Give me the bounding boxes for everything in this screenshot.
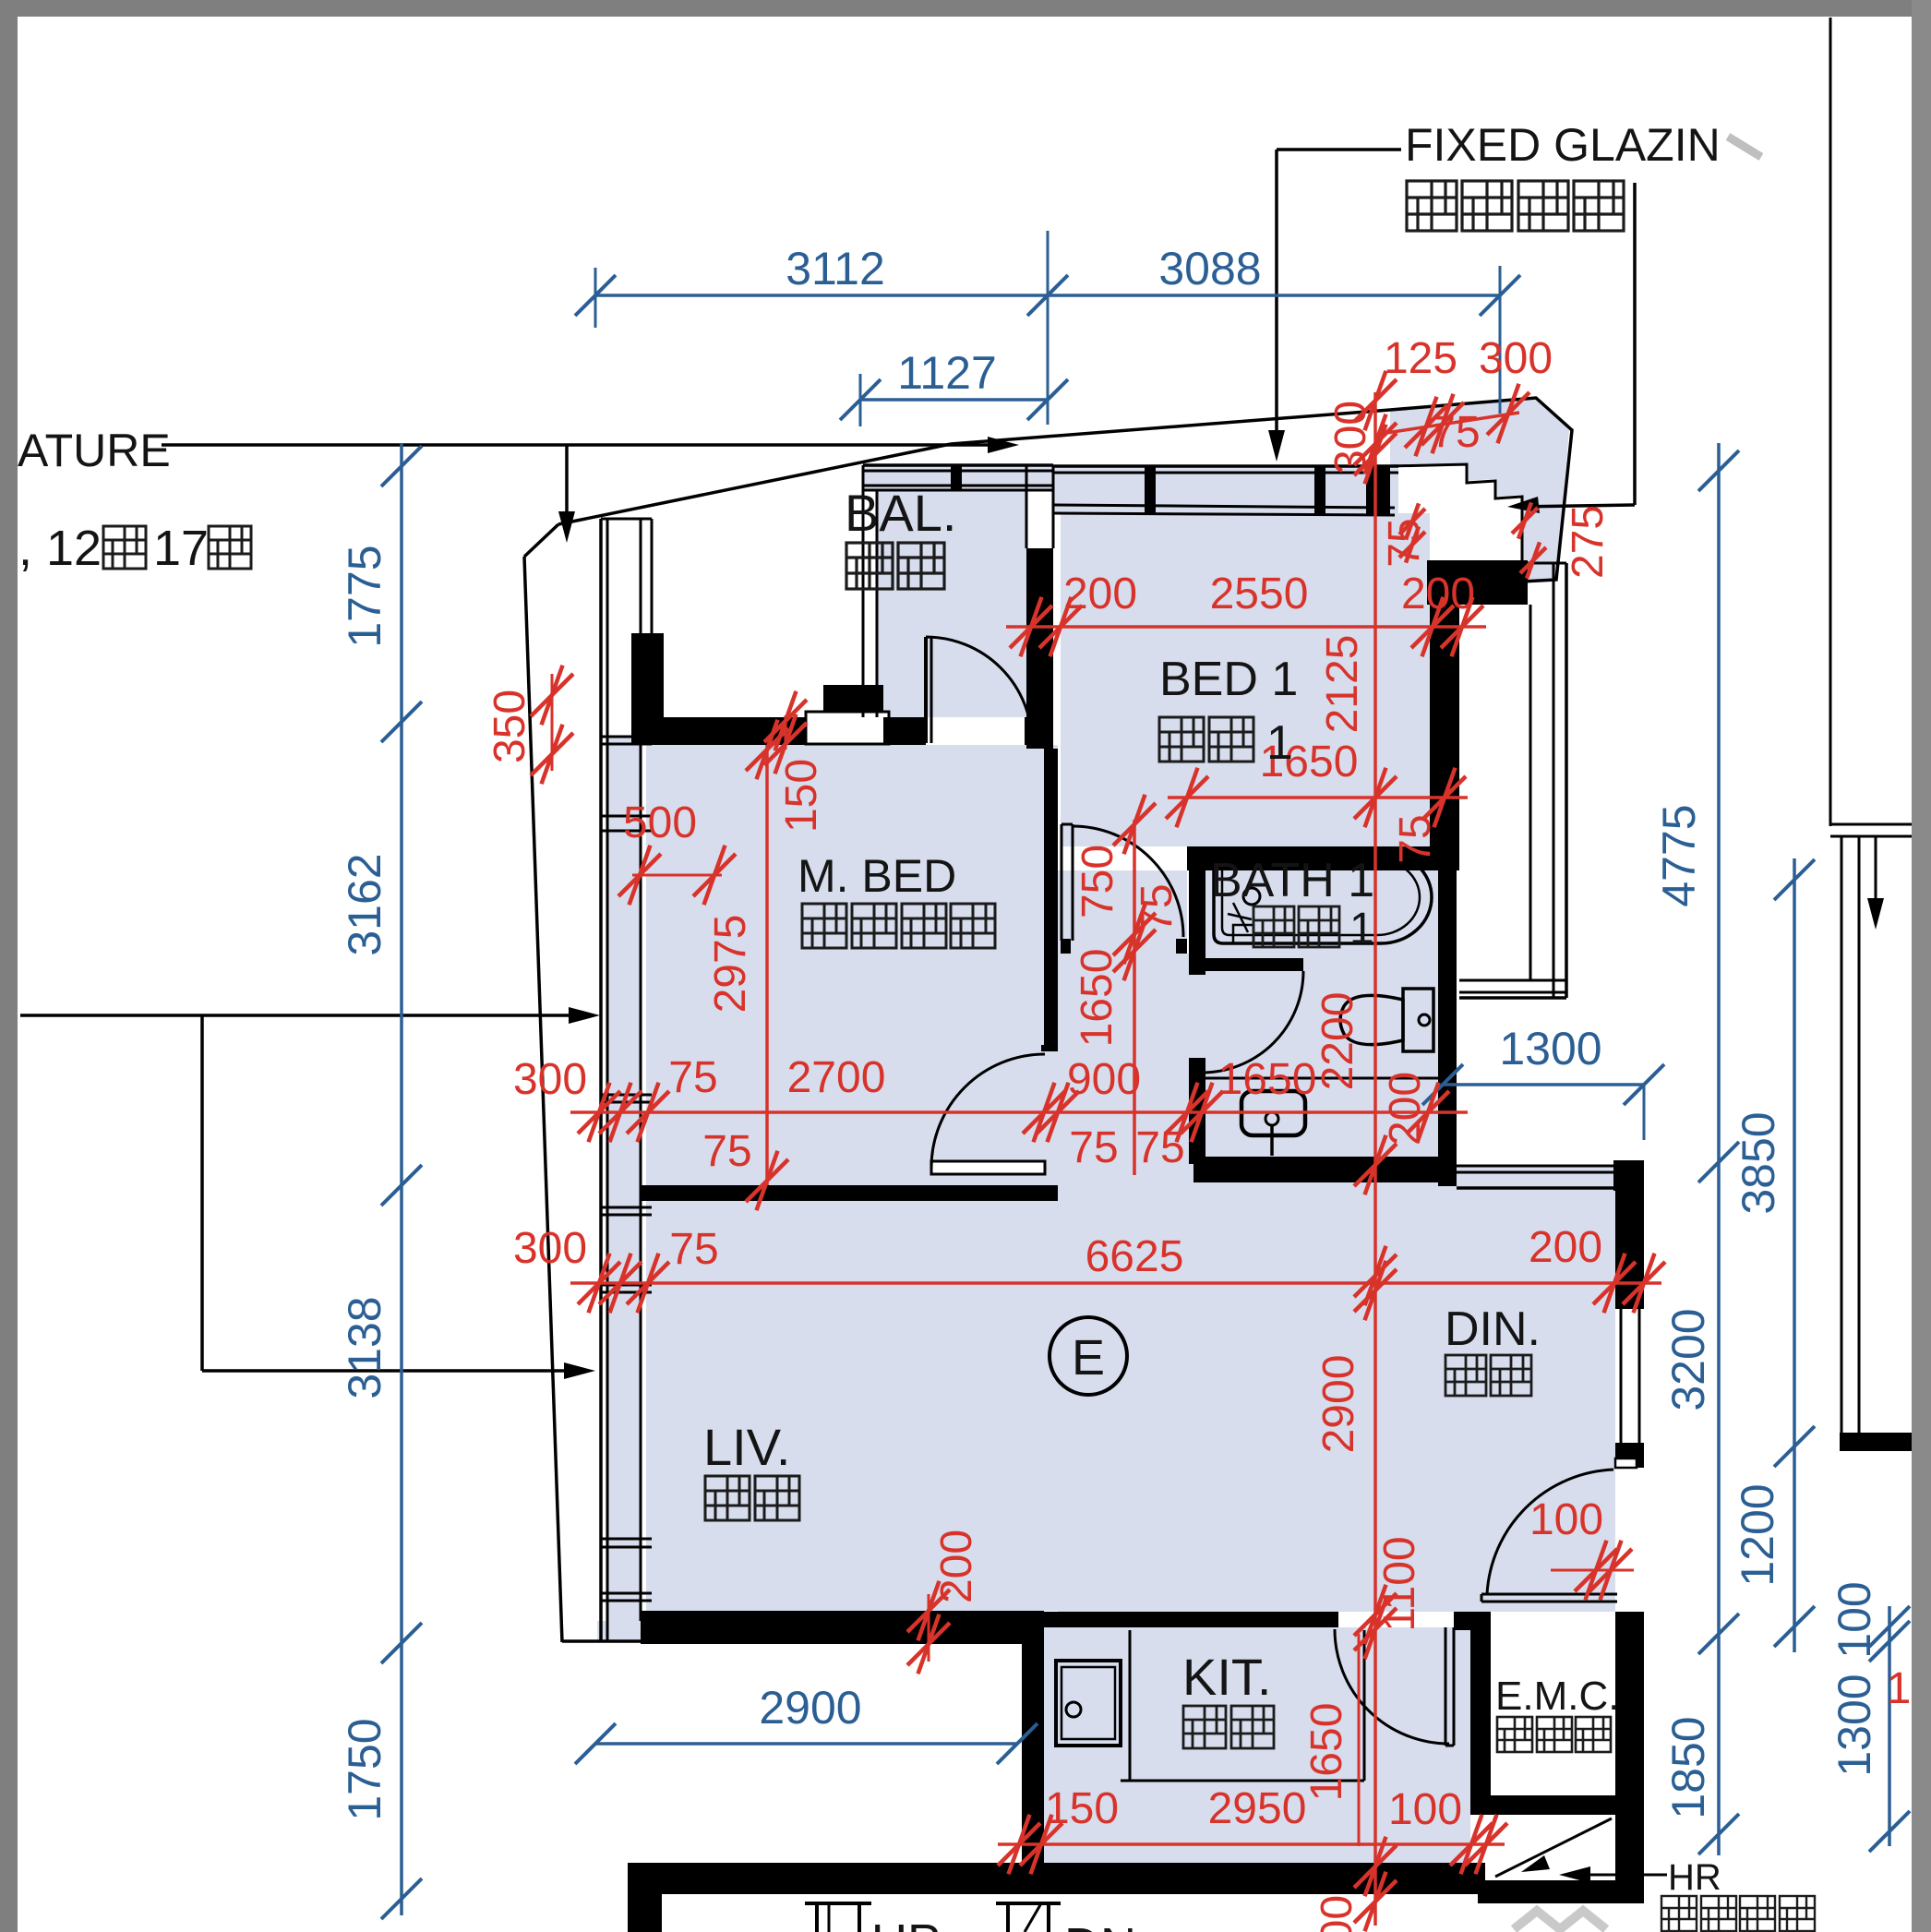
svg-text:75: 75 bbox=[1069, 1123, 1118, 1172]
svg-text:900: 900 bbox=[1067, 1055, 1141, 1104]
svg-text:1750: 1750 bbox=[339, 1718, 390, 1820]
svg-text:3138: 3138 bbox=[339, 1296, 390, 1398]
svg-text:275: 275 bbox=[1564, 505, 1613, 579]
svg-text:UP: UP bbox=[871, 1914, 941, 1932]
svg-text:100: 100 bbox=[1829, 1581, 1880, 1658]
svg-text:1300: 1300 bbox=[1499, 1023, 1601, 1074]
svg-text:1650: 1650 bbox=[1302, 1703, 1351, 1802]
svg-text:FIXED GLAZIN: FIXED GLAZIN bbox=[1405, 119, 1721, 171]
svg-text:200: 200 bbox=[932, 1530, 981, 1603]
svg-text:BATH 1: BATH 1 bbox=[1210, 854, 1374, 907]
svg-text:3850: 3850 bbox=[1733, 1111, 1784, 1214]
svg-text:300: 300 bbox=[1479, 334, 1553, 383]
svg-text:LIV.: LIV. bbox=[703, 1418, 790, 1476]
svg-text:200: 200 bbox=[1063, 570, 1137, 618]
svg-text:3200: 3200 bbox=[1662, 1308, 1714, 1410]
svg-text:150: 150 bbox=[1045, 1784, 1119, 1833]
svg-text:1850: 1850 bbox=[1662, 1716, 1714, 1818]
svg-text:1: 1 bbox=[1266, 716, 1293, 770]
svg-text:200: 200 bbox=[1381, 1072, 1430, 1146]
svg-text:2700: 2700 bbox=[787, 1053, 886, 1102]
svg-text:BED 1: BED 1 bbox=[1159, 653, 1298, 706]
svg-text:2200: 2200 bbox=[1313, 992, 1362, 1091]
svg-text:2900: 2900 bbox=[1314, 1355, 1363, 1454]
svg-text:6625: 6625 bbox=[1085, 1232, 1184, 1281]
svg-text:, 12: , 12 bbox=[18, 521, 102, 576]
svg-text:3088: 3088 bbox=[1158, 243, 1261, 294]
svg-text:DIN.: DIN. bbox=[1445, 1302, 1541, 1356]
svg-text:75: 75 bbox=[1431, 408, 1480, 457]
svg-text:HR: HR bbox=[1668, 1857, 1721, 1898]
svg-text:1650: 1650 bbox=[1073, 949, 1121, 1048]
svg-text:ATURE: ATURE bbox=[18, 425, 171, 476]
svg-text:300: 300 bbox=[1326, 401, 1375, 474]
svg-text:1200: 1200 bbox=[1732, 1483, 1783, 1586]
svg-text:2900: 2900 bbox=[759, 1682, 861, 1734]
svg-text:75: 75 bbox=[1135, 1123, 1184, 1172]
svg-text:200: 200 bbox=[1529, 1223, 1602, 1272]
svg-text:750: 750 bbox=[1073, 845, 1122, 918]
svg-text:500: 500 bbox=[623, 798, 697, 847]
svg-text:1: 1 bbox=[1349, 905, 1374, 954]
svg-text:75: 75 bbox=[702, 1127, 751, 1176]
svg-text:75: 75 bbox=[669, 1225, 718, 1274]
svg-text:E.M.C.: E.M.C. bbox=[1495, 1674, 1619, 1719]
svg-text:2550: 2550 bbox=[1210, 570, 1309, 618]
svg-text:75: 75 bbox=[668, 1053, 717, 1102]
svg-text:1127: 1127 bbox=[897, 347, 997, 399]
svg-text:1100: 1100 bbox=[1375, 1536, 1424, 1631]
svg-text:3162: 3162 bbox=[339, 853, 390, 955]
svg-text:M. BED: M. BED bbox=[798, 850, 956, 902]
svg-text:300: 300 bbox=[513, 1224, 587, 1273]
svg-text:1: 1 bbox=[1887, 1664, 1912, 1713]
svg-text:BAL.: BAL. bbox=[845, 484, 956, 542]
svg-text:KIT.: KIT. bbox=[1182, 1648, 1271, 1706]
svg-text:75: 75 bbox=[1380, 518, 1429, 567]
svg-text:1775: 1775 bbox=[339, 545, 390, 647]
svg-text:17: 17 bbox=[153, 521, 209, 576]
svg-text:100: 100 bbox=[1529, 1495, 1603, 1544]
svg-text:100: 100 bbox=[1388, 1785, 1462, 1834]
svg-text:2975: 2975 bbox=[706, 915, 755, 1014]
svg-text:300: 300 bbox=[513, 1055, 587, 1104]
svg-text:2950: 2950 bbox=[1208, 1784, 1307, 1833]
svg-text:75: 75 bbox=[1133, 883, 1181, 932]
svg-text:3112: 3112 bbox=[786, 243, 885, 294]
svg-text:1300: 1300 bbox=[1829, 1674, 1880, 1776]
svg-text:E: E bbox=[1072, 1330, 1105, 1386]
svg-text:350: 350 bbox=[486, 690, 534, 763]
svg-text:200: 200 bbox=[1401, 570, 1475, 618]
svg-text:2125: 2125 bbox=[1318, 635, 1367, 734]
svg-text:300: 300 bbox=[1313, 1895, 1361, 1932]
svg-text:75: 75 bbox=[1391, 814, 1440, 863]
svg-text:1650: 1650 bbox=[1218, 1055, 1317, 1104]
svg-text:125: 125 bbox=[1384, 334, 1457, 383]
svg-text:DN: DN bbox=[1064, 1918, 1136, 1932]
svg-text:4775: 4775 bbox=[1653, 804, 1705, 906]
svg-text:150: 150 bbox=[777, 759, 826, 833]
